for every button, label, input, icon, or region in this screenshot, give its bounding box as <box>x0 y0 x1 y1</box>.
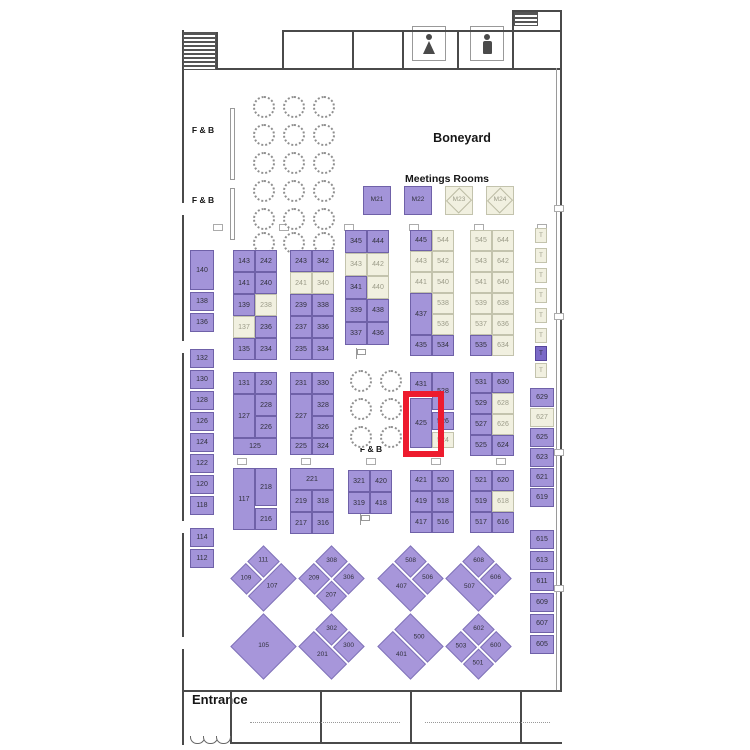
boneyard-label: Boneyard <box>418 131 506 145</box>
booth-334[interactable]: 334 <box>312 338 334 360</box>
booth-143[interactable]: 143 <box>233 250 255 272</box>
booth-516[interactable]: 516 <box>432 512 454 533</box>
booth-627[interactable]: 627 <box>530 408 554 427</box>
room-corner-lines <box>446 187 472 213</box>
t-station-selected[interactable]: T <box>535 346 547 361</box>
booth-number: 138 <box>196 298 208 305</box>
booth-324[interactable]: 324 <box>312 438 334 455</box>
booth-number: 537 <box>475 321 487 328</box>
booth-number: 606 <box>490 575 501 582</box>
booth-number: 518 <box>437 498 449 505</box>
booth-number: 407 <box>396 583 407 590</box>
booth-number: 239 <box>295 302 307 309</box>
booth-545[interactable]: 545 <box>470 230 492 251</box>
fnb-label-top: F & B <box>188 125 218 135</box>
booth-605[interactable]: 605 <box>530 635 554 654</box>
booth-number: 217 <box>295 520 307 527</box>
booth-number: 618 <box>497 498 509 505</box>
booth-326[interactable]: 326 <box>312 416 334 438</box>
booth-number: 226 <box>260 424 272 431</box>
booth-231[interactable]: 231 <box>290 372 312 394</box>
booth-319[interactable]: 319 <box>348 492 370 514</box>
booth-239[interactable]: 239 <box>290 294 312 316</box>
booth-number: 127 <box>238 413 250 420</box>
booth-544[interactable]: 544 <box>432 230 454 251</box>
pillar <box>554 205 564 212</box>
pillar <box>213 224 223 231</box>
booth-542[interactable]: 542 <box>432 251 454 272</box>
booth-130[interactable]: 130 <box>190 370 214 389</box>
round-table <box>313 180 335 202</box>
booth-642[interactable]: 642 <box>492 251 514 272</box>
pillar <box>301 458 311 465</box>
booth-342[interactable]: 342 <box>312 250 334 272</box>
booth-number: 503 <box>455 643 466 650</box>
booth-number: 607 <box>536 620 548 627</box>
booth-number: 600 <box>490 643 501 650</box>
booth-139[interactable]: 139 <box>233 294 255 316</box>
booth-525[interactable]: 525 <box>470 435 492 456</box>
booth-241[interactable]: 241 <box>290 272 312 294</box>
booth-number: 623 <box>536 454 548 461</box>
booth-228[interactable]: 228 <box>255 394 277 416</box>
booth-341[interactable]: 341 <box>345 276 367 299</box>
booth-436[interactable]: 436 <box>367 322 389 345</box>
booth-number: 342 <box>317 258 329 265</box>
booth-number: 326 <box>317 424 329 431</box>
booth-number: 642 <box>497 258 509 265</box>
wall <box>425 722 550 723</box>
booth-number: 516 <box>437 519 449 526</box>
booth-number: 135 <box>238 346 250 353</box>
booth-531[interactable]: 531 <box>470 372 492 393</box>
booth-number: 644 <box>497 237 509 244</box>
booth-number: 525 <box>475 442 487 449</box>
booth-536[interactable]: 536 <box>432 314 454 335</box>
t-station[interactable]: T <box>535 228 547 243</box>
booth-number: 340 <box>317 280 329 287</box>
booth-number: 418 <box>375 500 387 507</box>
booth-440[interactable]: 440 <box>367 276 389 299</box>
booth-number: 543 <box>475 258 487 265</box>
booth-541[interactable]: 541 <box>470 272 492 293</box>
booth-number: 629 <box>536 394 548 401</box>
room-corner-lines <box>487 187 513 213</box>
booth-number: 438 <box>372 307 384 314</box>
wall <box>182 690 562 692</box>
booth-number: 132 <box>196 355 208 362</box>
t-station[interactable]: T <box>535 248 547 263</box>
booth-407[interactable]: 407 <box>377 562 426 611</box>
booth-138[interactable]: 138 <box>190 292 214 311</box>
booth-number: T <box>539 368 543 374</box>
booth-443[interactable]: 443 <box>410 251 432 272</box>
booth-number: 131 <box>238 380 250 387</box>
booth-number: 234 <box>260 346 272 353</box>
booth-number: 500 <box>413 634 424 641</box>
booth-438[interactable]: 438 <box>367 299 389 322</box>
booth-201[interactable]: 201 <box>298 630 347 679</box>
booth-136[interactable]: 136 <box>190 313 214 332</box>
wall <box>410 692 412 742</box>
booth-337[interactable]: 337 <box>345 322 367 345</box>
booth-226[interactable]: 226 <box>255 416 277 438</box>
booth-number: 139 <box>238 302 250 309</box>
booth-number: 638 <box>497 300 509 307</box>
island-booth-group: 500401 <box>377 613 443 679</box>
booth-number: 539 <box>475 300 487 307</box>
booth-441[interactable]: 441 <box>410 272 432 293</box>
round-table <box>253 180 275 202</box>
booth-105[interactable]: 105 <box>230 613 296 679</box>
booth-number: 125 <box>249 443 261 450</box>
booth-225[interactable]: 225 <box>290 438 312 455</box>
island-booth-group: 602503600501 <box>445 613 511 679</box>
booth-534[interactable]: 534 <box>432 335 454 356</box>
booth-number: 338 <box>317 302 329 309</box>
booth-number: 541 <box>475 279 487 286</box>
booth-640[interactable]: 640 <box>492 272 514 293</box>
pillar <box>554 585 564 592</box>
booth-316[interactable]: 316 <box>312 512 334 534</box>
booth-number: 538 <box>437 300 449 307</box>
booth-338[interactable]: 338 <box>312 294 334 316</box>
wall <box>352 30 354 70</box>
round-table <box>283 96 305 118</box>
booth-125[interactable]: 125 <box>233 438 277 455</box>
booth-230[interactable]: 230 <box>255 372 277 394</box>
booth-540[interactable]: 540 <box>432 272 454 293</box>
booth-number: 343 <box>350 261 362 268</box>
booth-127[interactable]: 127 <box>233 394 255 438</box>
pillar <box>554 313 564 320</box>
booth-number: 443 <box>415 258 427 265</box>
round-table <box>313 124 335 146</box>
booth-235[interactable]: 235 <box>290 338 312 360</box>
booth-number: 218 <box>260 484 272 491</box>
booth-616[interactable]: 616 <box>492 512 514 533</box>
meeting-room-M23[interactable]: M23 <box>445 186 473 215</box>
booth-number: 339 <box>350 307 362 314</box>
meeting-room-M24[interactable]: M24 <box>486 186 514 215</box>
booth-539[interactable]: 539 <box>470 293 492 314</box>
flag-icon <box>360 514 369 525</box>
wall <box>216 32 218 70</box>
t-station[interactable]: T <box>535 363 547 378</box>
booth-607[interactable]: 607 <box>530 614 554 633</box>
booth-437[interactable]: 437 <box>410 293 432 335</box>
booth-number: 626 <box>497 421 509 428</box>
round-table <box>313 152 335 174</box>
booth-number: T <box>539 253 543 259</box>
booth-number: 209 <box>308 575 319 582</box>
booth-137[interactable]: 137 <box>233 316 255 338</box>
booth-number: 105 <box>258 643 269 650</box>
booth-537[interactable]: 537 <box>470 314 492 335</box>
booth-529[interactable]: 529 <box>470 393 492 414</box>
booth-535[interactable]: 535 <box>470 335 492 356</box>
booth-243[interactable]: 243 <box>290 250 312 272</box>
t-station[interactable]: T <box>535 268 547 283</box>
booth-517[interactable]: 517 <box>470 512 492 533</box>
t-station[interactable]: T <box>535 328 547 343</box>
booth-420[interactable]: 420 <box>370 470 392 492</box>
booth-number: 128 <box>196 397 208 404</box>
booth-number: 319 <box>353 500 365 507</box>
booth-number: 634 <box>497 342 509 349</box>
booth-number: 609 <box>536 599 548 606</box>
booth-521[interactable]: 521 <box>470 470 492 491</box>
booth-435[interactable]: 435 <box>410 335 432 356</box>
booth-218[interactable]: 218 <box>255 468 277 506</box>
wall <box>556 68 557 690</box>
booth-543[interactable]: 543 <box>470 251 492 272</box>
booth-128[interactable]: 128 <box>190 391 214 410</box>
booth-520[interactable]: 520 <box>432 470 454 491</box>
booth-527[interactable]: 527 <box>470 414 492 435</box>
booth-630[interactable]: 630 <box>492 372 514 393</box>
booth-626[interactable]: 626 <box>492 414 514 435</box>
booth-number: 318 <box>317 498 329 505</box>
round-table <box>253 124 275 146</box>
round-table <box>313 208 335 230</box>
booth-421[interactable]: 421 <box>410 470 432 491</box>
booth-number: T <box>539 273 543 279</box>
meeting-room-M22[interactable]: M22 <box>404 186 432 215</box>
wall <box>520 692 522 742</box>
booth-519[interactable]: 519 <box>470 491 492 512</box>
booth-221[interactable]: 221 <box>290 468 334 490</box>
booth-419[interactable]: 419 <box>410 491 432 512</box>
booth-336[interactable]: 336 <box>312 316 334 338</box>
booth-629[interactable]: 629 <box>530 388 554 407</box>
booth-117[interactable]: 117 <box>233 468 255 530</box>
booth-219[interactable]: 219 <box>290 490 312 512</box>
island-booth-group: 608606507 <box>445 545 511 611</box>
booth-628[interactable]: 628 <box>492 393 514 414</box>
booth-number: 137 <box>238 324 250 331</box>
booth-330[interactable]: 330 <box>312 372 334 394</box>
stairs-hatch <box>183 32 216 70</box>
booth-number: 227 <box>295 413 307 420</box>
booth-236[interactable]: 236 <box>255 316 277 338</box>
booth-644[interactable]: 644 <box>492 230 514 251</box>
booth-number: 517 <box>475 519 487 526</box>
booth-318[interactable]: 318 <box>312 490 334 512</box>
round-table <box>283 152 305 174</box>
female-icon <box>423 34 435 54</box>
round-table <box>380 398 402 420</box>
round-table <box>350 426 372 448</box>
booth-number: 542 <box>437 258 449 265</box>
round-table <box>253 96 275 118</box>
booth-number: 114 <box>196 534 207 541</box>
wall <box>182 30 184 692</box>
booth-445[interactable]: 445 <box>410 230 432 251</box>
booth-132[interactable]: 132 <box>190 349 214 368</box>
booth-number: 219 <box>295 498 307 505</box>
booth-number: 300 <box>343 643 354 650</box>
booth-538[interactable]: 538 <box>432 293 454 314</box>
male-icon <box>483 34 492 54</box>
booth-238[interactable]: 238 <box>255 294 277 316</box>
booth-328[interactable]: 328 <box>312 394 334 416</box>
booth-number: T <box>539 293 543 299</box>
meeting-rooms-label: Meetings Rooms <box>393 173 501 185</box>
booth-237[interactable]: 237 <box>290 316 312 338</box>
booth-234[interactable]: 234 <box>255 338 277 360</box>
booth-340[interactable]: 340 <box>312 272 334 294</box>
booth-number: 341 <box>350 284 362 291</box>
booth-number: 419 <box>415 498 427 505</box>
booth-number: 107 <box>266 583 277 590</box>
booth-number: 330 <box>317 380 329 387</box>
booth-number: 308 <box>326 557 337 564</box>
booth-417[interactable]: 417 <box>410 512 432 533</box>
booth-619[interactable]: 619 <box>530 488 554 507</box>
booth-number: 627 <box>536 414 548 421</box>
booth-120[interactable]: 120 <box>190 475 214 494</box>
t-station[interactable]: T <box>535 288 547 303</box>
booth-135[interactable]: 135 <box>233 338 255 360</box>
booth-number: 417 <box>415 519 427 526</box>
booth-114[interactable]: 114 <box>190 528 214 547</box>
booth-number: T <box>539 333 543 339</box>
wall <box>216 68 562 70</box>
booth-number: 201 <box>317 651 328 658</box>
booth-number: 130 <box>196 376 208 383</box>
booth-number: 507 <box>464 583 475 590</box>
round-table <box>283 124 305 146</box>
booth-number: 109 <box>240 575 251 582</box>
booth-518[interactable]: 518 <box>432 491 454 512</box>
booth-number: 624 <box>497 442 509 449</box>
booth-216[interactable]: 216 <box>255 508 277 530</box>
booth-345[interactable]: 345 <box>345 230 367 253</box>
booth-339[interactable]: 339 <box>345 299 367 322</box>
wall <box>282 30 562 32</box>
booth-number: 241 <box>295 280 307 287</box>
booth-number: 435 <box>415 342 427 349</box>
booth-615[interactable]: 615 <box>530 530 554 549</box>
island-booth-group: 508506407 <box>377 545 443 611</box>
booth-number: 506 <box>422 575 433 582</box>
booth-number: 235 <box>295 346 307 353</box>
booth-217[interactable]: 217 <box>290 512 312 534</box>
booth-623[interactable]: 623 <box>530 448 554 467</box>
booth-625[interactable]: 625 <box>530 428 554 447</box>
wall <box>457 30 459 70</box>
booth-636[interactable]: 636 <box>492 314 514 335</box>
booth-number: 534 <box>437 342 449 349</box>
round-table <box>283 208 305 230</box>
booth-124[interactable]: 124 <box>190 433 214 452</box>
booth-611[interactable]: 611 <box>530 572 554 591</box>
booth-321[interactable]: 321 <box>348 470 370 492</box>
booth-618[interactable]: 618 <box>492 491 514 512</box>
wall <box>230 188 235 240</box>
booth-number: 640 <box>497 279 509 286</box>
booth-number: 111 <box>258 557 268 564</box>
booth-number: T <box>539 313 543 319</box>
booth-number: 140 <box>196 267 208 274</box>
booth-number: 615 <box>536 536 548 543</box>
meeting-room-M21[interactable]: M21 <box>363 186 391 215</box>
booth-240[interactable]: 240 <box>255 272 277 294</box>
t-station[interactable]: T <box>535 308 547 323</box>
booth-122[interactable]: 122 <box>190 454 214 473</box>
booth-number: 334 <box>317 346 329 353</box>
pillar <box>554 449 564 456</box>
pillar <box>366 458 376 465</box>
round-table <box>253 152 275 174</box>
booth-number: 444 <box>372 238 384 245</box>
wall <box>180 203 186 215</box>
booth-634[interactable]: 634 <box>492 335 514 356</box>
pillar <box>237 458 247 465</box>
booth-131[interactable]: 131 <box>233 372 255 394</box>
booth-number: 602 <box>473 625 484 632</box>
round-table <box>380 426 402 448</box>
round-table <box>380 370 402 392</box>
booth-number: 242 <box>260 258 272 265</box>
booth-number: 225 <box>295 443 307 450</box>
booth-number: 540 <box>437 279 449 286</box>
booth-507[interactable]: 507 <box>445 562 494 611</box>
booth-126[interactable]: 126 <box>190 412 214 431</box>
booth-609[interactable]: 609 <box>530 593 554 612</box>
booth-638[interactable]: 638 <box>492 293 514 314</box>
booth-number: 440 <box>372 284 384 291</box>
entrance-label: Entrance <box>186 692 262 707</box>
wall <box>282 30 284 70</box>
booth-number: 401 <box>396 651 407 658</box>
booth-620[interactable]: 620 <box>492 470 514 491</box>
wall <box>180 341 186 353</box>
booth-number: 421 <box>415 477 427 484</box>
booth-418[interactable]: 418 <box>370 492 392 514</box>
booth-442[interactable]: 442 <box>367 253 389 276</box>
booth-number: 238 <box>260 302 272 309</box>
booth-number: 112 <box>196 555 207 562</box>
booth-number: 302 <box>326 625 337 632</box>
booth-number: 625 <box>536 434 548 441</box>
booth-343[interactable]: 343 <box>345 253 367 276</box>
booth-number: 216 <box>260 516 272 523</box>
booth-242[interactable]: 242 <box>255 250 277 272</box>
booth-number: 345 <box>350 238 362 245</box>
booth-number: T <box>539 233 543 239</box>
booth-number: 126 <box>196 418 208 425</box>
booth-number: 118 <box>196 502 207 509</box>
booth-141[interactable]: 141 <box>233 272 255 294</box>
booth-621[interactable]: 621 <box>530 468 554 487</box>
booth-number: 519 <box>475 498 487 505</box>
booth-number: 616 <box>497 519 509 526</box>
booth-227[interactable]: 227 <box>290 394 312 438</box>
booth-140[interactable]: 140 <box>190 250 214 290</box>
booth-112[interactable]: 112 <box>190 549 214 568</box>
booth-444[interactable]: 444 <box>367 230 389 253</box>
booth-number: 636 <box>497 321 509 328</box>
booth-613[interactable]: 613 <box>530 551 554 570</box>
booth-107[interactable]: 107 <box>247 562 296 611</box>
booth-118[interactable]: 118 <box>190 496 214 515</box>
round-table <box>313 96 335 118</box>
booth-624[interactable]: 624 <box>492 435 514 456</box>
booth-number: 336 <box>317 324 329 331</box>
wall <box>232 742 562 744</box>
